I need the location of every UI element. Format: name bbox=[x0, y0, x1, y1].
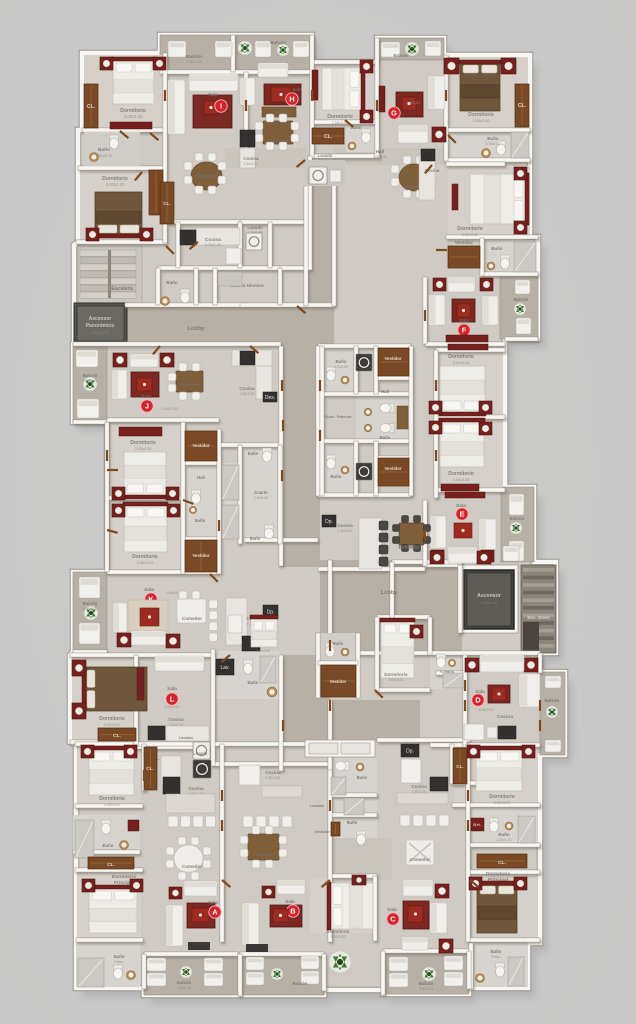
svg-text:Baño: Baño bbox=[491, 949, 502, 954]
svg-text:2.00x2.30: 2.00x2.30 bbox=[96, 154, 113, 158]
svg-text:2.30x2.30: 2.30x2.30 bbox=[240, 392, 255, 396]
svg-text:3.00x1.20: 3.00x1.20 bbox=[419, 987, 433, 991]
svg-text:2.30x1.70: 2.30x1.70 bbox=[244, 162, 259, 166]
svg-text:CL.: CL. bbox=[324, 134, 333, 140]
svg-text:Lavado: Lavado bbox=[318, 153, 333, 158]
svg-text:Dp.: Dp. bbox=[267, 609, 275, 615]
svg-text:Dormitorio: Dormitorio bbox=[384, 672, 408, 677]
svg-text:Balcón: Balcón bbox=[293, 981, 308, 986]
svg-text:Vestidor: Vestidor bbox=[330, 679, 347, 684]
svg-text:1.90x1.90: 1.90x1.90 bbox=[480, 600, 498, 605]
svg-text:Dormitorio: Dormitorio bbox=[468, 112, 494, 118]
svg-text:Princ.: Princ. bbox=[491, 955, 500, 959]
svg-text:Baño: Baño bbox=[331, 474, 342, 479]
svg-text:Ascensor: Ascensor bbox=[477, 593, 501, 599]
svg-text:Dormitorio: Dormitorio bbox=[132, 554, 158, 560]
svg-text:Comedor: Comedor bbox=[182, 864, 202, 869]
svg-text:Baño: Baño bbox=[98, 147, 110, 153]
svg-text:3.60x3.00: 3.60x3.00 bbox=[104, 723, 121, 727]
svg-text:Sala: Sala bbox=[475, 689, 485, 694]
svg-text:1.20x1.20: 1.20x1.20 bbox=[373, 155, 387, 159]
svg-text:F: F bbox=[462, 326, 467, 335]
svg-text:7.50x1.00: 7.50x1.00 bbox=[186, 60, 202, 64]
svg-text:Baño: Baño bbox=[336, 359, 347, 364]
svg-text:3.05x3.70: 3.05x3.70 bbox=[479, 708, 494, 712]
svg-text:1.00x3.60: 1.00x3.60 bbox=[83, 379, 97, 383]
svg-text:Balcón: Balcón bbox=[545, 698, 560, 703]
svg-text:Dormitorio: Dormitorio bbox=[130, 440, 156, 446]
svg-text:3.60x3.00: 3.60x3.00 bbox=[494, 801, 511, 805]
svg-text:Cocina: Cocina bbox=[188, 786, 204, 791]
svg-text:Panorámico: Panorámico bbox=[86, 323, 115, 329]
svg-text:Balcón: Balcón bbox=[83, 373, 98, 378]
svg-text:2.30x2.00: 2.30x2.00 bbox=[338, 529, 353, 533]
svg-text:Lavado: Lavado bbox=[179, 735, 194, 740]
svg-text:3.60x3.60: 3.60x3.60 bbox=[165, 705, 180, 709]
svg-text:3.60x3.26: 3.60x3.26 bbox=[453, 361, 470, 365]
svg-text:Sala: Sala bbox=[459, 318, 469, 324]
svg-text:Comedor: Comedor bbox=[398, 545, 419, 551]
svg-text:Sala: Sala bbox=[144, 587, 154, 593]
svg-text:Baño: Baño bbox=[333, 641, 344, 646]
svg-text:Baño: Baño bbox=[498, 832, 510, 837]
svg-text:Balcón: Balcón bbox=[177, 980, 192, 985]
svg-text:Cocina: Cocina bbox=[497, 714, 513, 720]
svg-text:2.35x1.70: 2.35x1.70 bbox=[497, 838, 512, 842]
svg-text:3.60x3.50: 3.60x3.50 bbox=[462, 233, 479, 237]
svg-text:CL.: CL. bbox=[87, 104, 96, 110]
svg-text:Sala: Sala bbox=[167, 686, 177, 692]
svg-text:1.70x1.40: 1.70x1.40 bbox=[248, 231, 263, 235]
svg-text:4.60x2.60: 4.60x2.60 bbox=[162, 407, 179, 411]
svg-text:Cocina: Cocina bbox=[337, 523, 353, 528]
svg-text:1.50x2.30: 1.50x2.30 bbox=[256, 649, 270, 653]
svg-text:3.00x3.00: 3.00x3.00 bbox=[331, 935, 346, 939]
svg-text:Dormitorio: Dormitorio bbox=[99, 796, 125, 802]
svg-text:Baño: Baño bbox=[248, 451, 259, 456]
svg-text:Dormitorio: Dormitorio bbox=[489, 794, 515, 800]
svg-text:B: B bbox=[290, 907, 296, 916]
svg-text:Baño: Baño bbox=[195, 518, 206, 523]
svg-text:CL.: CL. bbox=[113, 733, 121, 739]
svg-text:Princ.: Princ. bbox=[114, 960, 123, 964]
svg-text:Sala: Sala bbox=[292, 87, 302, 93]
svg-text:Dormitorio: Dormitorio bbox=[448, 471, 474, 477]
svg-text:Dormitorio: Dormitorio bbox=[327, 114, 353, 120]
svg-text:Cocina: Cocina bbox=[239, 386, 255, 391]
svg-text:1.00x3.60: 1.00x3.60 bbox=[83, 607, 97, 611]
svg-text:Vestidor: Vestidor bbox=[455, 240, 473, 245]
svg-text:Baño: Baño bbox=[357, 775, 368, 780]
svg-text:Dormitorio: Dormitorio bbox=[486, 871, 511, 877]
svg-text:Baño: Baño bbox=[487, 136, 499, 141]
svg-text:Baño: Baño bbox=[103, 843, 114, 848]
svg-text:E: E bbox=[459, 510, 464, 519]
svg-text:B.H.: B.H. bbox=[473, 823, 481, 827]
svg-text:2.30x2.30: 2.30x2.30 bbox=[266, 776, 281, 780]
svg-text:Dormitorio: Dormitorio bbox=[457, 226, 483, 232]
svg-text:3.00x3.40: 3.00x3.40 bbox=[473, 119, 490, 123]
svg-text:Cocina: Cocina bbox=[243, 156, 259, 161]
svg-text:2.30x2.30: 2.30x2.30 bbox=[205, 243, 221, 247]
svg-text:Dp.: Dp. bbox=[406, 748, 414, 754]
svg-text:Escalera: Escalera bbox=[111, 286, 132, 292]
svg-text:Dormitorio: Dormitorio bbox=[99, 716, 125, 722]
svg-text:Vestidor: Vestidor bbox=[384, 466, 402, 471]
svg-text:Ascensor: Ascensor bbox=[89, 316, 112, 322]
svg-text:3.00x1.20: 3.00x1.20 bbox=[177, 986, 191, 990]
svg-text:Sala: Sala bbox=[410, 100, 420, 106]
svg-text:Lavado: Lavado bbox=[247, 225, 263, 230]
svg-text:3.00x3.10: 3.00x3.10 bbox=[106, 182, 125, 187]
svg-text:Baño: Baño bbox=[114, 954, 125, 959]
svg-text:Cocina: Cocina bbox=[168, 717, 184, 722]
svg-text:J: J bbox=[145, 402, 149, 411]
svg-text:Cocina: Cocina bbox=[411, 784, 427, 789]
svg-text:Sala: Sala bbox=[141, 394, 151, 400]
svg-text:1.90x1.75: 1.90x1.75 bbox=[91, 330, 109, 335]
svg-text:CL.: CL. bbox=[107, 862, 114, 867]
svg-text:Esc. Emer.: Esc. Emer. bbox=[527, 615, 550, 620]
svg-text:H: H bbox=[289, 95, 294, 104]
svg-text:Lobby: Lobby bbox=[188, 326, 206, 332]
svg-text:3.05x3.00: 3.05x3.00 bbox=[389, 678, 404, 682]
svg-text:Dormitorio: Dormitorio bbox=[326, 929, 350, 934]
svg-text:Lav.: Lav. bbox=[220, 665, 229, 671]
svg-text:Lavado: Lavado bbox=[193, 751, 208, 756]
svg-text:L: L bbox=[170, 695, 175, 704]
svg-text:Dormitorio: Dormitorio bbox=[448, 354, 474, 360]
svg-text:D: D bbox=[475, 696, 481, 705]
svg-text:Hall: Hall bbox=[376, 149, 384, 154]
svg-text:Vestidor: Vestidor bbox=[314, 829, 330, 834]
svg-text:Cuarto: Cuarto bbox=[254, 490, 268, 495]
svg-text:3.00x3.00: 3.00x3.00 bbox=[104, 803, 121, 807]
svg-text:CL.: CL. bbox=[163, 201, 170, 206]
svg-text:Lobby: Lobby bbox=[381, 590, 399, 596]
svg-text:Comedor: Comedor bbox=[267, 138, 288, 144]
svg-text:Hall: Hall bbox=[381, 389, 389, 394]
svg-text:3.00x3.26: 3.00x3.26 bbox=[135, 447, 152, 451]
svg-text:Balcón: Balcón bbox=[270, 40, 286, 46]
svg-text:Baño: Baño bbox=[250, 536, 261, 541]
svg-text:Balcón: Balcón bbox=[83, 601, 98, 606]
svg-text:3.60x3.26: 3.60x3.26 bbox=[453, 478, 470, 482]
svg-text:Comedor: Comedor bbox=[195, 174, 217, 180]
svg-text:Comedor: Comedor bbox=[410, 857, 430, 862]
svg-text:CL.: CL. bbox=[518, 103, 527, 109]
svg-text:Comedor: Comedor bbox=[180, 382, 200, 387]
svg-text:Baño: Baño bbox=[380, 435, 391, 440]
svg-text:Cuen. Paterna: Cuen. Paterna bbox=[325, 414, 353, 419]
svg-text:Balcón: Balcón bbox=[419, 981, 434, 986]
svg-text:I: I bbox=[220, 102, 222, 111]
svg-text:CL.: CL. bbox=[146, 766, 153, 771]
svg-text:Des.: Des. bbox=[265, 395, 275, 401]
svg-text:2.00x1.60: 2.00x1.60 bbox=[254, 496, 268, 500]
svg-text:Balcón: Balcón bbox=[393, 53, 409, 58]
svg-text:Cocina: Cocina bbox=[265, 770, 281, 775]
svg-text:Vestidor: Vestidor bbox=[384, 356, 402, 361]
svg-text:Sala: Sala bbox=[208, 92, 218, 98]
svg-text:Vestidor: Vestidor bbox=[192, 443, 210, 448]
svg-text:G: G bbox=[391, 109, 397, 118]
svg-text:Balcón: Balcón bbox=[510, 516, 525, 521]
svg-text:Sala: Sala bbox=[285, 899, 295, 904]
svg-text:Balcón: Balcón bbox=[514, 297, 529, 302]
svg-text:Vestidor: Vestidor bbox=[192, 553, 210, 558]
svg-text:C: C bbox=[390, 915, 396, 924]
svg-text:Lavado: Lavado bbox=[310, 803, 325, 808]
svg-text:Hall: Hall bbox=[197, 475, 205, 480]
svg-text:CL.: CL. bbox=[498, 860, 506, 866]
svg-text:Baño: Baño bbox=[166, 280, 178, 285]
svg-text:Baño: Baño bbox=[248, 680, 259, 685]
svg-text:3.00x3.26: 3.00x3.26 bbox=[137, 561, 154, 565]
svg-text:Comedor: Comedor bbox=[256, 852, 276, 857]
svg-text:2.75x1.50: 2.75x1.50 bbox=[486, 142, 501, 146]
svg-text:Sala: Sala bbox=[387, 907, 397, 912]
svg-text:A: A bbox=[212, 908, 218, 917]
svg-text:CL.: CL. bbox=[456, 764, 463, 769]
svg-text:1.70x1.50: 1.70x1.50 bbox=[334, 365, 348, 369]
svg-text:Baño: Baño bbox=[491, 246, 503, 251]
svg-text:Comedor: Comedor bbox=[182, 616, 202, 621]
svg-text:Sala: Sala bbox=[208, 900, 218, 905]
svg-text:Baño: Baño bbox=[347, 820, 358, 825]
svg-text:3.05x3.10: 3.05x3.10 bbox=[124, 114, 143, 119]
svg-text:Dp.: Dp. bbox=[325, 519, 333, 525]
